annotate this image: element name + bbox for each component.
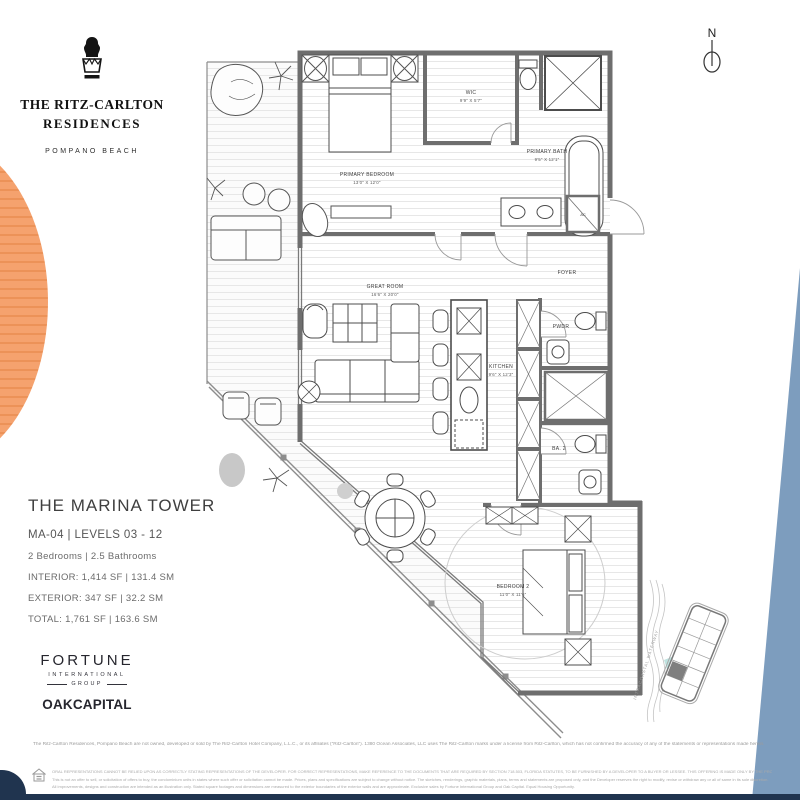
room-dims-primary-bedroom: 13'0" X 12'0" [353, 180, 381, 185]
legal-fine-print: ORAL REPRESENTATIONS CANNOT BE RELIED UP… [52, 768, 772, 791]
fortune-international-label: INTERNATIONAL [28, 672, 146, 678]
unit-total-area: TOTAL: 1,761 SF | 163.6 SM [28, 614, 215, 625]
room-dims-kitchen: 9'6" X 12'3" [489, 372, 514, 377]
room-label-kitchen: KITCHEN [489, 364, 513, 370]
keyplan-building [656, 601, 730, 706]
brand-name-line1: THE RITZ-CARLTON [16, 97, 168, 113]
orange-accent-shape [0, 137, 60, 467]
room-label-bedroom2: BEDROOM 2 [497, 584, 530, 590]
equal-housing-icon [32, 768, 46, 783]
room-dims-primary-bath: 9'5" X 12'1" [535, 157, 560, 162]
compass-icon: N [697, 24, 727, 82]
ritz-carlton-lion-icon [16, 36, 168, 89]
developer-logos: FORTUNE INTERNATIONAL GROUP OAKCAPITAL [28, 652, 146, 712]
floor-plan: PRIMARY BEDROOM 13'0" X 12'0" WIC 9'9" X… [195, 48, 665, 740]
room-label-bath2: BA. 2 [552, 446, 566, 452]
primary-bed [329, 55, 391, 152]
unit-exterior-area: EXTERIOR: 347 SF | 32.2 SM [28, 593, 215, 604]
key-plan: INTRACOASTAL WATERWAY [628, 578, 763, 733]
room-label-primary-bath: PRIMARY BATH [527, 149, 568, 155]
unit-title: THE MARINA TOWER [28, 496, 215, 516]
unit-info-block: THE MARINA TOWER MA-04 | LEVELS 03 - 12 … [28, 496, 215, 625]
room-label-wic: WIC [466, 90, 477, 96]
brand-block: THE RITZ-CARLTON RESIDENCES POMPANO BEAC… [16, 36, 168, 155]
legal-line-3: All improvements, designs and constructi… [52, 783, 772, 791]
fortune-group-label: GROUP [71, 681, 102, 687]
unit-levels: MA-04 | LEVELS 03 - 12 [28, 529, 215, 541]
fortune-logo: FORTUNE [28, 652, 146, 669]
legal-line-2: This is not an offer to sell, or solicit… [52, 776, 772, 784]
room-dims-great-room: 16'6" X 20'0" [371, 292, 399, 297]
room-label-great-room: GREAT ROOM [367, 284, 404, 290]
room-label-primary-bedroom: PRIMARY BEDROOM [340, 172, 394, 178]
license-disclaimer: The Ritz-Carlton Residences, Pompano Bea… [33, 742, 768, 747]
room-label-ac: AC [580, 212, 586, 217]
room-dims-bedroom2: 11'0" X 11'6" [500, 592, 527, 597]
legal-line-1: ORAL REPRESENTATIONS CANNOT BE RELIED UP… [52, 768, 772, 776]
waterway-label: INTRACOASTAL WATERWAY [632, 629, 659, 700]
brand-name-line2: RESIDENCES [16, 116, 168, 132]
unit-bedbath: 2 Bedrooms | 2.5 Bathrooms [28, 551, 215, 562]
unit-interior-area: INTERIOR: 1,414 SF | 131.4 SM [28, 572, 215, 583]
oak-capital-logo: OAKCAPITAL [28, 697, 146, 712]
room-dims-wic: 9'9" X 5'7" [460, 98, 482, 103]
kitchen-counter [451, 300, 487, 450]
compass-north-label: N [708, 26, 717, 40]
brand-location: POMPANO BEACH [16, 148, 168, 155]
navy-footer-bar [0, 794, 800, 800]
navy-corner-shape [0, 770, 26, 800]
room-label-foyer: FOYER [558, 270, 577, 276]
floorplan-brochure-page: THE RITZ-CARLTON RESIDENCES POMPANO BEAC… [0, 0, 800, 800]
room-label-powder: PWDR [553, 324, 570, 330]
